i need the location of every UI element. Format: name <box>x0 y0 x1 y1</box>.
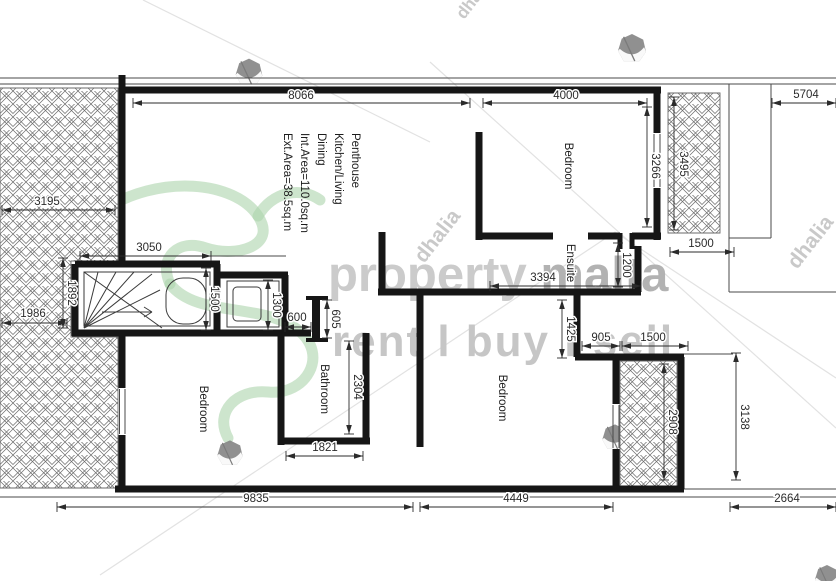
dimension-label: 605 <box>329 309 341 328</box>
floor-plan-drawing: property malta rent l buy l sell dhaliad… <box>0 0 836 581</box>
dimension-arrow <box>324 329 330 338</box>
dimension-label: 1892 <box>65 280 77 306</box>
dimension-arrow <box>644 218 650 227</box>
dimension-arrow <box>346 425 352 434</box>
dimension-label: 1986 <box>20 308 46 320</box>
dimension-arrow <box>133 100 142 106</box>
dimension: 3138 <box>731 353 750 480</box>
dimension-label: 1425 <box>564 316 576 342</box>
dimension-label: 3495 <box>677 151 689 177</box>
penthouse-label-line: Penthouse <box>349 133 361 188</box>
dimension-arrow <box>733 353 739 362</box>
dimension-label: 9835 <box>243 493 269 505</box>
dimension-label: 1300 <box>270 292 282 318</box>
dimension: 9835 <box>57 493 413 512</box>
dimension-arrow <box>679 343 688 349</box>
dimension-label: 3138 <box>738 404 750 430</box>
dimension-label: 4449 <box>503 493 529 505</box>
dimension-label: 1821 <box>312 442 338 454</box>
dimension: 1500 <box>670 238 734 257</box>
dimension-arrow <box>420 504 429 510</box>
dimension-label: 2664 <box>774 493 800 505</box>
room-label: Bedroom <box>197 386 209 433</box>
room-label: Ensuite <box>564 244 576 282</box>
floor-plan-page: property malta rent l buy l sell dhaliad… <box>0 0 836 581</box>
terrace-hatch <box>0 88 118 488</box>
dimension-arrow <box>772 100 781 106</box>
dimension-label: 905 <box>591 332 610 344</box>
dimension-label: 2304 <box>351 374 363 400</box>
dhalia-watermark-text: dhalia <box>452 0 498 22</box>
dimension: 1821 <box>286 442 363 461</box>
terrace-hatch <box>668 93 720 233</box>
dimension-label: 5704 <box>793 89 819 101</box>
penthouse-label-line: Kitchen/Living <box>332 133 344 205</box>
gem-icon <box>815 565 836 581</box>
dimension-arrow <box>827 100 836 106</box>
dimension-arrow <box>57 504 66 510</box>
gem-icon <box>618 34 646 61</box>
room-label: Bathroom <box>318 364 330 414</box>
dimension-arrow <box>265 321 271 330</box>
dimension-arrow <box>730 504 739 510</box>
penthouse-label-line: Int.Area=110.0sq.m <box>298 133 310 233</box>
penthouse-text-block: PenthouseKitchen/LivingDiningInt.Area=11… <box>281 133 361 233</box>
dimension-label: 3050 <box>136 242 162 254</box>
dimension: 4449 <box>420 493 613 512</box>
dimension-label: 1500 <box>208 286 220 312</box>
gecko-stroke <box>170 284 313 438</box>
watermark-line <box>143 0 430 142</box>
dhalia-watermark-text: dhalia <box>783 211 836 273</box>
dimension-arrow <box>404 504 413 510</box>
dimension-arrow <box>461 100 470 106</box>
gem-icon <box>217 440 242 464</box>
gem-icon <box>236 59 263 85</box>
room-label: Bedroom <box>496 375 508 422</box>
dimension-arrow <box>483 100 492 106</box>
dimension: 2664 <box>730 493 836 512</box>
dimension-label: 1500 <box>688 238 714 250</box>
dimension-arrow <box>354 453 363 459</box>
dimension-label: 600 <box>287 312 306 324</box>
dimension-label: 2908 <box>666 409 678 435</box>
dimension-arrow <box>604 504 613 510</box>
dimension-arrow <box>827 504 836 510</box>
room-label: Bedroom <box>562 143 574 190</box>
dimension-arrow <box>302 324 311 330</box>
penthouse-label-line: Dining <box>315 133 327 166</box>
dimension: 5704 <box>772 89 836 108</box>
dimension-arrow <box>644 107 650 116</box>
dimension-arrow <box>286 453 295 459</box>
dimension-label: 1200 <box>620 252 632 278</box>
dimension-label: 1500 <box>640 332 666 344</box>
dimension-arrow <box>638 100 647 106</box>
penthouse-label-line: Ext.Area=38.5sq.m <box>281 133 293 231</box>
dimension-label: 3394 <box>530 272 556 284</box>
dimension-label: 4000 <box>553 90 579 102</box>
dimension-label: 8066 <box>288 90 314 102</box>
dimension-label: 3266 <box>649 153 661 179</box>
stair-detail <box>84 272 162 328</box>
dimension-arrow <box>670 249 679 255</box>
dimension-label: 3195 <box>34 196 60 208</box>
dimension-arrow <box>733 471 739 480</box>
